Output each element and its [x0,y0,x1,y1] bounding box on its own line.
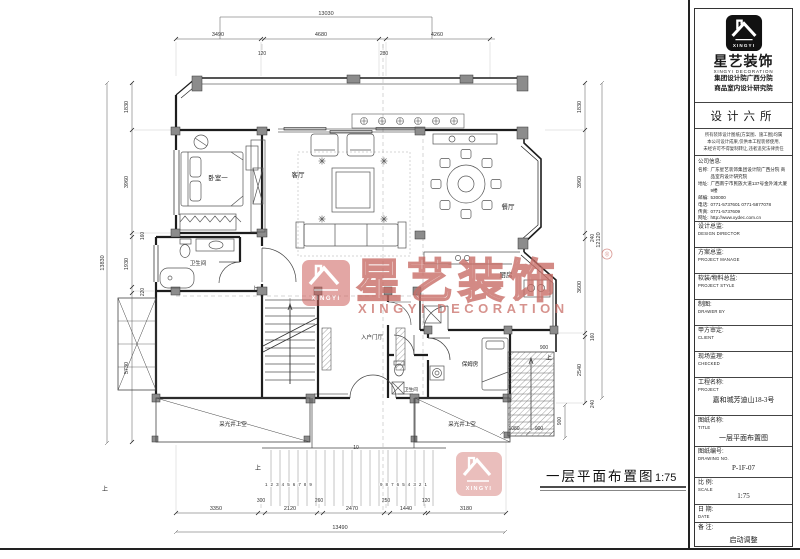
room-label-lightwell-right: 采光井上空 [448,420,476,428]
scale-value: 1:75 [698,492,789,500]
dim-label: 2120 [284,506,296,512]
dim-label: 13030 [318,11,333,17]
dim-label: 220 [140,288,146,297]
field-label-en: PROJECT MANAGE [698,257,789,262]
dim-label: 900 [540,345,549,351]
floor-plan: 13030 3490 120 4680 280 4260 13830 1830 … [0,0,690,559]
svg-text:XINGYI: XINGYI [311,296,340,302]
bedroom-furniture [181,135,258,206]
walls [154,78,556,398]
title-block: XINGYI 星艺装饰 XINGYI DECORATION 集团设计院广西分院 … [688,0,796,548]
dim-label: 3960 [124,176,130,188]
field-project-style: 软装/物料总监: PROJECT STYLE [695,274,792,300]
drawing-number-value: P-1F-07 [698,464,789,472]
exterior-ramp-left [118,298,156,390]
field-label-cn: 甲方审定: [698,328,789,335]
field-design-director: 设计总监: DESIGN DIRECTOR [695,222,792,248]
field-label-cn: 比 例: [698,480,789,487]
field-label-cn: 日 期: [698,507,789,514]
disclaimer-line: 所有装饰设计图纸(方案图、施工图)均属 [695,132,792,139]
company-info-heading: 公司信息: [698,158,789,166]
dim-label: 3180 [460,506,472,512]
plant-icon [319,158,326,165]
sheet-border [0,548,800,550]
wardrobe [180,214,241,230]
svg-text:XINGYI: XINGYI [466,486,492,492]
plant-icon [381,158,388,165]
org-line-2: 商品室内设计研究院 [695,84,792,94]
room-label-bedroom: 卧室一 [208,173,228,182]
field-scale: 比 例: SCALE 1:75 [695,478,792,505]
entry-steps [262,398,446,506]
field-label-en: DRAWER BY [698,309,789,314]
watermark-bottom: XINGYI [456,452,502,496]
field-label-cn: 设计总监: [698,224,789,231]
dim-label: 160 [140,232,146,241]
studio-name: 设计六所 [695,103,792,129]
step-numbers-descending: 9 8 7 6 5 4 3 2 1 [380,482,428,487]
field-label-cn: 软装/物料总监: [698,276,789,283]
room-label-bathroom: 卫生间 [190,259,207,267]
dim-label: 2470 [346,506,358,512]
dim-label: 4260 [431,32,443,38]
company-tel-label: 电话: [698,202,708,209]
disclaimer-line: 未经许可不得复制转让,违者追究法律责任 [695,146,792,153]
field-label-cn: 方案总监: [698,250,789,257]
project-name-value: 嘉和城芳迪山18-3号 [698,395,789,405]
dim-label: 240 [590,234,596,243]
field-drawing-number: 图纸编号: DRAWING NO. P-1F-07 [695,447,792,478]
exterior-stair-right [508,352,554,436]
caption-title: 一层平面布置图 [546,469,655,484]
dimension-top [174,17,495,78]
up-label-steps: 上 [255,464,261,472]
dim-label: 3350 [210,506,222,512]
brand-name-cn: 星艺装饰 [695,54,792,69]
field-project-name: 工程名称: PROJECT 嘉和城芳迪山18-3号 [695,378,792,416]
dim-label: 120 [258,51,267,57]
dim-label: 1830 [124,101,130,113]
light-wells [156,398,510,442]
up-label-exterior-stair: 上 [546,354,552,362]
dim-label: 3490 [212,32,224,38]
field-label-en: CHECKED [698,361,789,366]
company-addr-value: 广西南宁市民族大道137号金外滩大厦9楼 [710,181,789,195]
up-label-ramp: 上 [102,485,108,493]
watermark-center: XINGYI 星艺装饰 XINGYI DECORATION ® [302,249,612,316]
dining-furniture [431,134,501,219]
disclaimer-line: 本公司设计成果,仅供本工程装修使用, [695,139,792,146]
watermark-brand-cn: 星艺装饰 [356,255,560,307]
main-stair [263,298,317,384]
title-block-logo-area: XINGYI 星艺装饰 XINGYI DECORATION 集团设计院广西分院 … [695,9,792,103]
field-checked: 现场监理: CHECKED [695,352,792,378]
field-label-en: CLIENT [698,335,789,340]
company-fax-value: 0771-5737609 [710,209,740,216]
field-drawer: 制图: DRAWER BY [695,300,792,326]
dim-label: 280 [380,51,389,57]
dim-label: 13830 [100,255,106,270]
field-label-en: PROJECT [698,387,789,392]
dim-label: 300 [257,498,266,504]
step-numbers-ascending: 1 2 3 4 5 6 7 8 9 [265,482,313,487]
xingyi-logo-icon: XINGYI [725,14,763,52]
room-label-dining: 餐厅 [502,202,516,211]
dim-label: 1830 [577,101,583,113]
dim-label: 1930 [124,258,130,270]
field-label-en: DESIGN DIRECTOR [698,231,789,236]
field-label-en: PROJECT STYLE [698,283,789,288]
dim-label: 4680 [315,32,327,38]
disclaimer: 所有装饰设计图纸(方案图、施工图)均属 本公司设计成果,仅供本工程装修使用, 未… [695,129,792,156]
living-furniture [251,134,410,256]
dim-label: 900 [557,417,563,426]
field-label-en: DATE [698,514,789,519]
registered-mark: ® [605,252,610,259]
remark-value: 启动调整 [698,535,789,545]
drawing-title-value: 一层平面布置图 [698,433,789,443]
field-label-cn: 备 注: [698,525,789,532]
field-label-cn: 图纸编号: [698,449,789,456]
room-label-living: 客厅 [292,170,306,179]
dim-label: 120 [422,498,431,504]
field-label-en: DRAWING NO. [698,456,789,461]
company-zip-label: 邮编: [698,195,708,202]
field-drawing-title: 图纸名称: TITLE 一层平面布置图 [695,416,792,447]
step-ten-label: 10 [353,445,359,451]
company-zip-value: 530000 [710,195,725,202]
svg-text:XINGYI: XINGYI [732,43,754,48]
field-project-manager: 方案总监: PROJECT MANAGE [695,248,792,274]
terrace-planter [352,114,464,128]
plant-icon [319,216,326,223]
field-remark: 备 注: 启动调整 [695,523,792,546]
company-addr-label: 地址: [698,181,708,195]
field-label-cn: 图纸名称: [698,418,789,425]
sheet-caption: 一层平面布置图 1:75 [540,469,686,491]
field-label-cn: 现场监理: [698,354,789,361]
up-label-stair: 上 [252,285,258,293]
room-label-maid: 保姆房 [462,360,479,368]
caption-scale: 1:75 [655,472,676,484]
room-label-lightwell-left: 采光井上空 [219,420,247,428]
company-tel-value: 0771-5737601 0771-5877078 [710,202,771,209]
watermark-brand-en: XINGYI DECORATION [358,301,569,316]
room-label-bathroom2: 卫生间 [404,386,418,393]
dim-label: 3600 [577,281,583,293]
field-label-en: TITLE [698,425,789,430]
dim-label: 3960 [577,176,583,188]
dim-label: 13490 [332,525,347,531]
dim-label: 12120 [596,232,602,247]
dim-label: 1440 [400,506,412,512]
drawing-sheet: 13030 3490 120 4680 280 4260 13830 1830 … [0,0,800,559]
company-info: 公司信息: 名称:广东星艺装饰集团设计院广西分院 商品室内设计研究院 地址:广西… [695,156,792,222]
dim-label: 160 [590,333,596,342]
company-name-label: 名称: [698,167,708,181]
field-label-cn: 工程名称: [698,380,789,387]
org-line-1: 集团设计院广西分院 [695,74,792,84]
field-date: 日 期: DATE [695,505,792,523]
dim-label: 240 [590,400,596,409]
field-client: 甲方审定: CLIENT [695,326,792,352]
room-label-entry: 入户门厅 [361,333,384,341]
dim-label: 2540 [577,364,583,376]
company-name-value: 广东星艺装饰集团设计院广西分院 商品室内设计研究院 [710,167,789,181]
plant-icon [381,216,388,223]
field-label-cn: 制图: [698,302,789,309]
